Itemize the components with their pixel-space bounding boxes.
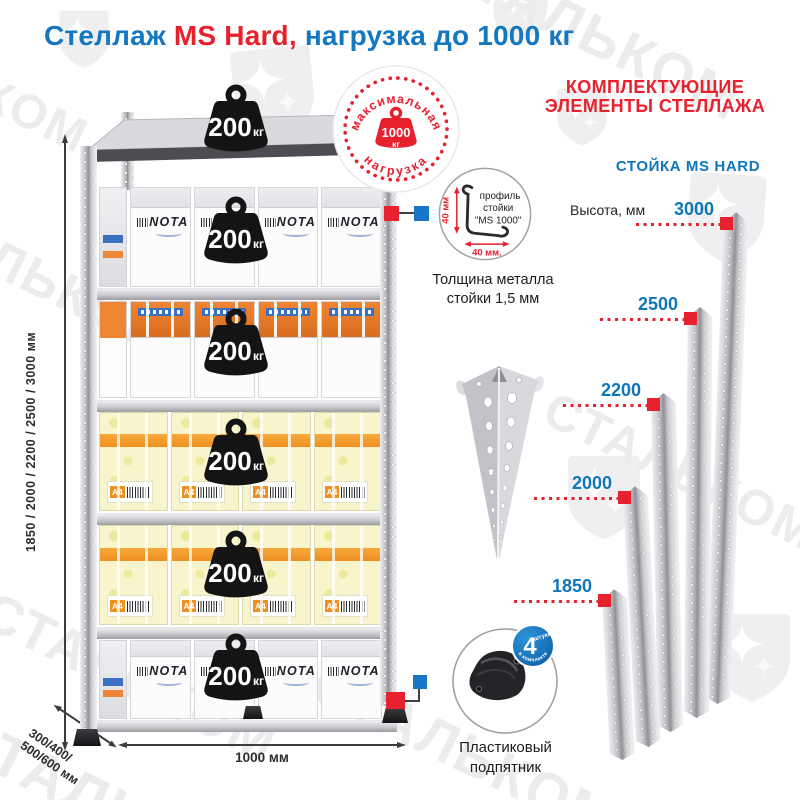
- blue-marker-square: [414, 206, 429, 221]
- connector-line: [418, 689, 420, 702]
- red-marker-square: [384, 206, 399, 221]
- weight-badge: 200 кг: [194, 84, 278, 153]
- stamp-value: 1000: [382, 125, 411, 140]
- max-load-stamp: максимальная нагрузка 1000 кг: [331, 64, 461, 194]
- weight-unit: кг: [253, 349, 264, 363]
- weight-unit: кг: [253, 674, 264, 688]
- weight-badge: 200 кг: [194, 418, 278, 487]
- weight-value: 200: [208, 112, 251, 142]
- weight-value: 200: [208, 558, 251, 588]
- stamp-unit: кг: [392, 139, 400, 149]
- weight-value: 200: [208, 446, 251, 476]
- weight-badge: 200 кг: [194, 530, 278, 599]
- infographic-canvas: СТАЛЬКОМСТАЛЬКОМСТАЛЬКОМСТАЛЬКОМСТАЛЬКОМ…: [0, 0, 800, 800]
- weight-value: 200: [208, 661, 251, 691]
- blue-marker-square: [413, 675, 427, 689]
- weight-value: 200: [208, 336, 251, 366]
- weight-badge: 200 кг: [194, 196, 278, 265]
- weight-badge: 200 кг: [194, 308, 278, 377]
- weight-value: 200: [208, 224, 251, 254]
- weight-unit: кг: [253, 571, 264, 585]
- weight-badge: 200 кг: [194, 633, 278, 702]
- weight-unit: кг: [253, 125, 264, 139]
- weight-unit: кг: [253, 459, 264, 473]
- red-marker-square: [386, 692, 405, 709]
- weight-unit: кг: [253, 237, 264, 251]
